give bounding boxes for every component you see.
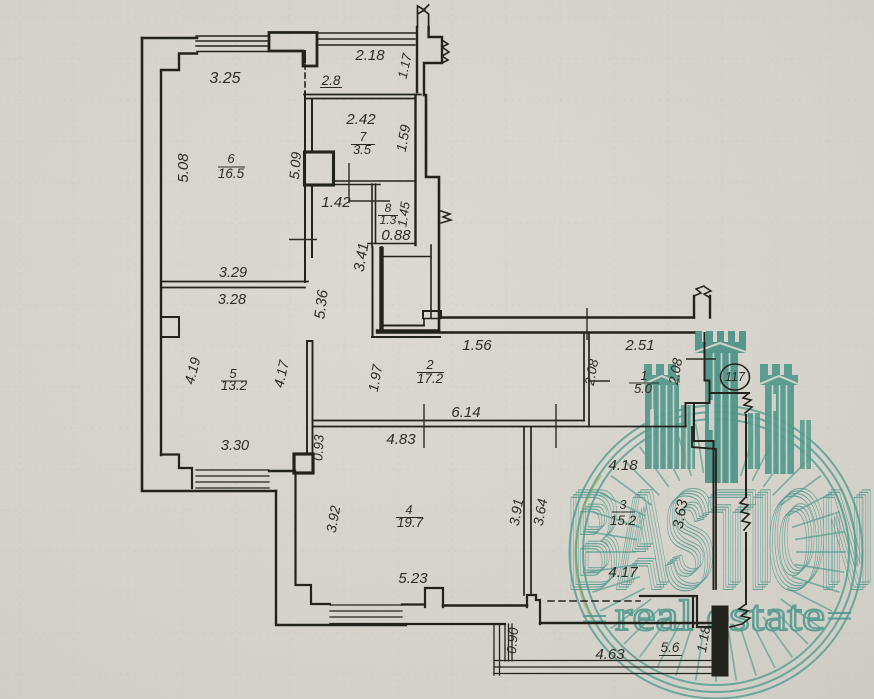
svg-text:117: 117 — [725, 370, 746, 384]
svg-text:6: 6 — [227, 151, 235, 166]
svg-text:5.08: 5.08 — [175, 153, 192, 183]
svg-text:2.8: 2.8 — [321, 73, 341, 88]
svg-text:3.30: 3.30 — [221, 438, 249, 454]
svg-text:4.63: 4.63 — [595, 646, 625, 663]
svg-text:5.6: 5.6 — [661, 640, 680, 655]
svg-text:2.42: 2.42 — [345, 111, 376, 128]
svg-text:2.18: 2.18 — [354, 47, 385, 64]
svg-text:1.56: 1.56 — [462, 337, 492, 354]
svg-text:4.17: 4.17 — [608, 564, 638, 581]
svg-text:17.2: 17.2 — [417, 371, 444, 386]
svg-text:5.09: 5.09 — [286, 151, 304, 180]
svg-text:3.29: 3.29 — [219, 265, 247, 281]
svg-text:0.88: 0.88 — [381, 227, 411, 244]
svg-text:5.23: 5.23 — [398, 570, 428, 587]
svg-text:2: 2 — [425, 357, 434, 372]
svg-text:13.2: 13.2 — [221, 378, 248, 393]
svg-text:BASTION: BASTION — [574, 462, 874, 611]
svg-text:0.90: 0.90 — [504, 626, 521, 654]
svg-text:16.5: 16.5 — [218, 166, 245, 181]
svg-text:15.2: 15.2 — [610, 513, 637, 528]
svg-text:5.36: 5.36 — [311, 288, 332, 320]
svg-text:3: 3 — [620, 498, 627, 512]
svg-text:4.83: 4.83 — [386, 431, 416, 448]
svg-text:3.28: 3.28 — [218, 292, 246, 308]
svg-text:1.42: 1.42 — [321, 194, 351, 211]
svg-text:4.18: 4.18 — [608, 457, 638, 474]
svg-text:3.25: 3.25 — [209, 70, 240, 87]
svg-text:6.14: 6.14 — [451, 404, 480, 421]
svg-text:2.51: 2.51 — [624, 337, 654, 354]
svg-text:0.93: 0.93 — [310, 434, 326, 462]
